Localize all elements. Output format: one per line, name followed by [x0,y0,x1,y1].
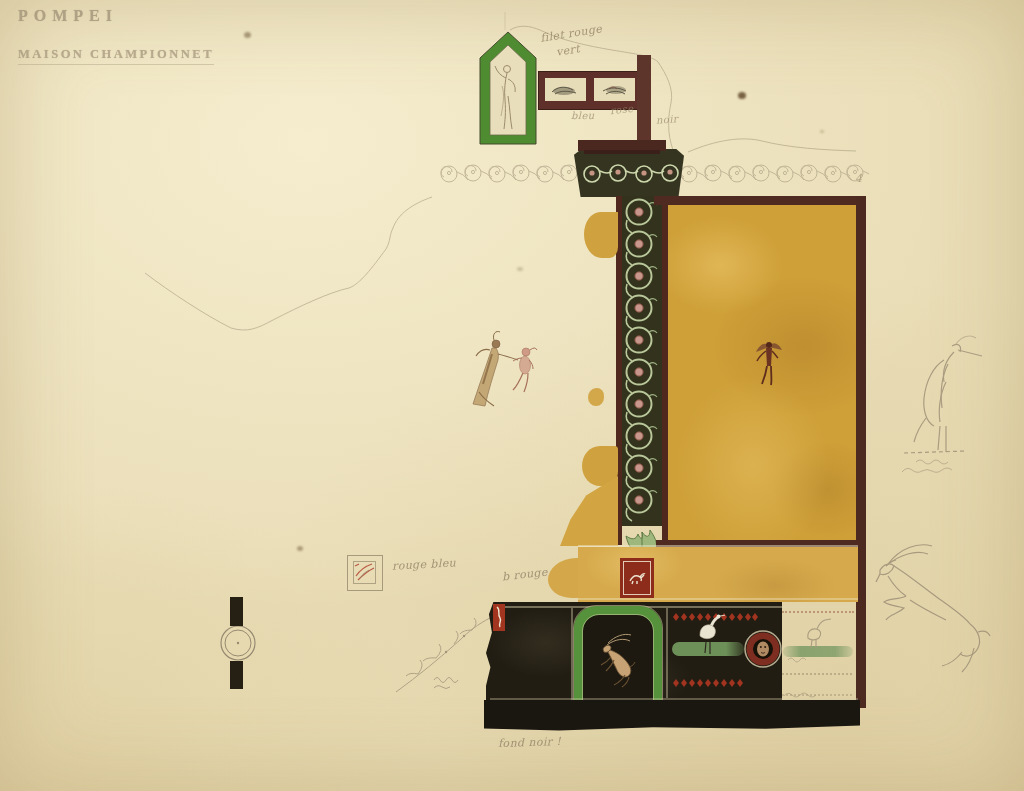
panel-left [545,78,586,101]
gold-frame-top [654,196,866,205]
panel-left-sketch [545,78,586,101]
stain [244,32,251,38]
niche-black-field [583,615,653,703]
maroon-post [637,55,651,153]
pencil-heron-sketch [798,614,832,650]
red-sliver-squiggle [493,604,505,631]
vine-branch-sketch [388,608,498,700]
floating-couple-figure [452,320,568,418]
black-bar-bottom [230,661,243,689]
panel-right-sketch [594,78,635,101]
watercolour-sheet: POMPEI MAISON CHAMPIONNET 4 [0,0,1024,791]
smudge [517,267,523,271]
pencil-lace-top [782,611,854,613]
illegible-scribbles [782,652,858,704]
gold-frame-right [856,196,866,708]
panel-right [594,78,635,101]
predella-divider-line [571,608,573,700]
red-tablet-overlay [620,558,654,598]
stain [738,92,746,99]
candelabrum-scrolls [616,196,662,526]
note-bleu: bleu [571,110,595,121]
capital-echinus [584,150,660,154]
black-bar-top [230,597,243,626]
note-fond-noir: fond noir ! [498,735,562,750]
white-creature-figure [627,569,647,587]
niche-green-frame [574,606,662,703]
margin-heron-sketch [896,330,992,482]
heron-figure-painted [692,612,726,656]
painted-frieze-scrolls [574,149,684,197]
painted-frieze-block [574,149,684,197]
leaping-goat-figure [591,627,647,691]
stain [820,130,824,133]
lace-border-bottom [672,678,744,688]
ochre-band-top-line [578,545,858,547]
stain [297,546,303,551]
plinth-top-line [490,698,858,700]
margin-goat-sketch [866,536,1018,676]
predella-divider-line [666,608,668,698]
ochre-band-bottom-line [578,598,858,600]
mask-medallion [742,628,784,670]
flying-genius-figure [748,336,790,390]
damage-patch [588,388,604,406]
damage-patch [584,212,618,258]
plinth-black-band [484,700,860,731]
sketch-square-scribble [350,558,378,586]
red-sliver [493,604,505,631]
predella-top-line [497,606,851,608]
note-noir: noir [656,113,679,126]
